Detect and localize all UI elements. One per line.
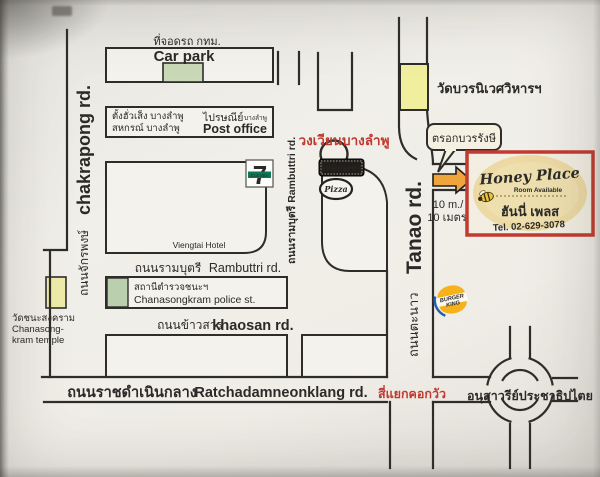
pizza-oval-text: Pizza [323,184,347,194]
map-canvas: ที่จอดรถ กทม. Car park ตั้งฮั่วเส็ง บางล… [0,0,600,477]
chakrapong-west-edge [44,30,67,250]
top-lane-lines [278,52,299,84]
department-store-line2: สหกรณ์ บางลำพู [112,122,180,134]
police-label-en: Chanasongkram police st. [134,294,255,306]
wat-bowonniwet-label: วัดบวรนิเวศวิหารฯ [437,81,542,96]
ratchadamnoen-label-en: Ratchadamneonklang rd. [194,385,367,401]
tanao-south-continuation [390,402,433,468]
police-label-thai: สถานีตำรวจชนะฯ [134,281,208,293]
seven-eleven-icon: 7 ELEVEn [246,160,273,190]
rambuttri-horizontal-label-en: Rambuttri rd. [209,261,281,275]
post-office-label-en: Post office [203,122,267,136]
trok-bowon-rangsi-label: ตรอกบวรรังษี [432,132,496,145]
burger-king-icon: BURGER KING [432,283,470,318]
temple-label-en1: Chanasong- [12,324,64,335]
honey-place-subtitle: Room Available [514,187,563,194]
car-park-green-box [163,63,203,82]
seven-eleven-eleven: ELEVEn [250,173,268,179]
distance-label-en: 10 m./ [433,199,465,211]
chakrapong-label-thai: ถนนจักรพงษ์ [77,230,91,296]
car-park-block: ที่จอดรถ กทม. Car park [106,33,273,82]
swensens-banner-text: Swensen's [320,164,363,173]
tanao-label-thai: ถนนตะนาว [406,292,421,357]
car-park-label-en: Car park [154,48,216,65]
ratchadamnoen-label-thai: ถนนราชดำเนินกลาง [67,384,197,401]
pizza-oval-logo: Pizza [320,179,352,199]
wat-bowonniwet-box [400,64,428,110]
chakrapong-label-en: chakrapong rd. [74,85,94,215]
honey-alley-and-tanao-east-edge [433,164,466,377]
tanao-label-en: Tanao rd. [403,181,426,274]
post-office-block: ตั้งฮั่วเส็ง บางลำพู สหกรณ์ บางลำพู ไปรษ… [106,107,273,137]
police-station-block: สถานีตำรวจชนะฯ Chanasongkram police st. [106,277,287,308]
temple-label-en2: kram temple [12,335,64,346]
car-park-label-thai: ที่จอดรถ กทม. [153,33,220,48]
swensens-banner-logo: Swensen's [319,159,364,176]
chanasongkram-temple-label: วัดชนะสงคราม Chanasong- kram temple [12,313,75,346]
honey-place-logo: Honey Place Room Available ฮันนี่ เพลส T… [467,152,593,235]
bubble-joint-patch [445,146,456,151]
police-green-box [107,278,128,307]
rambuttri-horizontal-label-thai: ถนนรามบุตรี [135,261,202,276]
temple-label-thai: วัดชนะสงคราม [12,313,75,324]
department-store-line1: ตั้งฮั่วเส็ง บางลำพู [112,109,184,122]
kok-wua-intersection-label: สี่แยกคอกวัว [378,385,446,401]
khaosan-south-block-west [106,335,287,377]
khaosan-label-en: khaosan rd. [212,318,293,334]
top-center-stub [318,53,352,110]
rambuttri-vertical-label: ถนนรามบุตรี Rambuttri rd. [285,137,299,264]
honey-place-thai: ฮันนี่ เพลส [501,202,559,219]
hotel-direction-map-photo: ที่จอดรถ กทม. Car park ตั้งฮั่วเส็ง บางล… [0,0,600,477]
khaosan-south-block-east [302,335,387,377]
banglamphu-circle-label: วงเวียนบางลำพู [299,133,390,149]
viengtai-hotel-label: Viengtai Hotel [173,240,226,250]
viengtai-hotel-block: Viengtai Hotel [106,162,266,253]
post-office-label-thai-small: บางลำพู [244,114,267,122]
democracy-monument-label: อนุสาวรีย์ประชาธิปไตย [467,388,593,404]
distance-label-thai: 10 เมตร [427,212,466,224]
